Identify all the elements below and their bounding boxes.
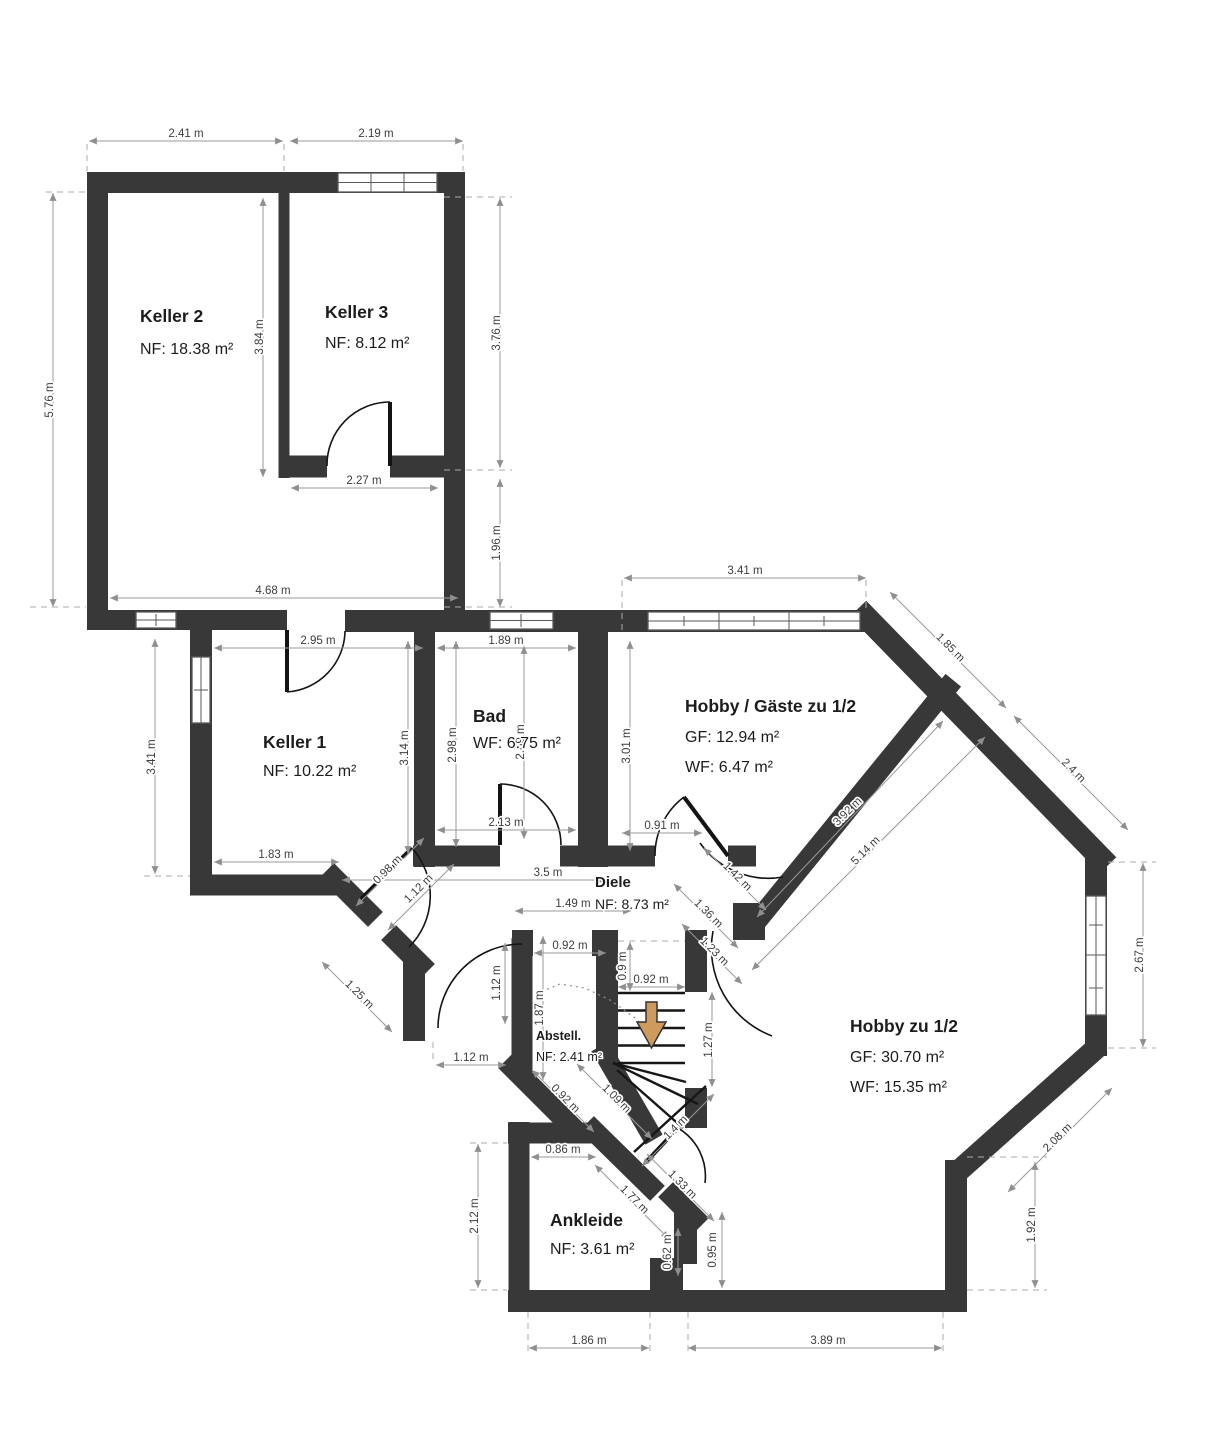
room-label-keller3: Keller 3 [325, 302, 388, 322]
dimension-label: 0.62 m [662, 1234, 674, 1269]
dimension-label: 2.95 m [300, 635, 335, 647]
dimension-label: 1.92 m [1026, 1207, 1038, 1242]
dimension-label: 0.92 m [552, 940, 587, 952]
room-label-keller2: Keller 2 [140, 306, 203, 326]
dimension-label: 4.68 m [255, 585, 290, 597]
dimension-label: 2.41 m [168, 128, 203, 140]
room-area-hobby: WF: 15.35 m² [850, 1079, 948, 1096]
dimension-label: 0.9 m [617, 952, 629, 981]
room-area-hobby-gaeste: WF: 6.47 m² [685, 759, 774, 776]
dimension-label: 0.91 m [644, 820, 679, 832]
dimension-label: 2.12 m [469, 1198, 481, 1233]
room-label-hobby: Hobby zu 1/2 [850, 1016, 958, 1036]
window-keller2-bottom [136, 612, 176, 628]
walk-line [536, 984, 650, 1032]
room-label-hobby-gaeste: Hobby / Gäste zu 1/2 [685, 696, 856, 716]
door-keller3 [327, 402, 390, 466]
room-area-keller2: NF: 18.38 m² [140, 341, 234, 358]
room-label-abstell: Abstell. [536, 1029, 581, 1043]
dimension-label: 1.12 m [491, 965, 503, 1000]
dimension-label: 3.76 m [491, 315, 503, 350]
window-keller3-top [338, 173, 437, 192]
room-area-keller1: NF: 10.22 m² [263, 763, 357, 780]
room-area-ankleide: NF: 3.61 m² [550, 1241, 635, 1258]
dimension-label: 1.87 m [534, 990, 546, 1025]
dimension-label: 2.98 m [447, 727, 459, 762]
dimension-label: 3.5 m [534, 867, 563, 879]
dimension-label: 1.83 m [258, 849, 293, 861]
dimension-label: 3.41 m [727, 565, 762, 577]
dimension-label: 0.92 m [633, 974, 668, 986]
dimension-label: 3.14 m [399, 730, 411, 765]
dimension-label: 1.96 m [491, 525, 503, 560]
dimension-label: 5.14 m [849, 834, 882, 867]
dimension-label: 3.84 m [254, 319, 266, 354]
dimension-label: 1.27 m [703, 1022, 715, 1057]
floor-plan-page: 2.41 m2.19 m5.76 m3.84 m3.76 m2.27 m1.96… [0, 0, 1210, 1440]
dimension-label: 3.41 m [146, 739, 158, 774]
door-bad [500, 784, 561, 845]
dimension-label: 0.86 m [545, 1144, 580, 1156]
dimension-label: 2.13 m [488, 817, 523, 829]
window-bad-top [490, 612, 553, 629]
window-keller1-left [192, 657, 210, 723]
room-area-bad: WF: 6.75 m² [473, 735, 562, 752]
dimension-label: 2.27 m [346, 475, 381, 487]
room-area-hobby: GF: 30.70 m² [850, 1049, 945, 1066]
door-abstell-corridor [438, 944, 522, 1028]
dimension-label: 3.01 m [621, 728, 633, 763]
dimension-label: 1.36 m [691, 897, 724, 930]
room-label-keller1: Keller 1 [263, 732, 326, 752]
dimension-label: 1.86 m [571, 1335, 606, 1347]
dimension-label: 0.98 m [371, 853, 404, 886]
room-label-diele: Diele [595, 874, 631, 891]
dimension-label: 2.19 m [358, 128, 393, 140]
dimension-label: 2.4 m [1059, 756, 1088, 785]
stairs-direction-arrow-icon [637, 1002, 666, 1048]
room-area-diele: NF: 8.73 m² [595, 896, 669, 912]
dimension-label: 2.67 m [1134, 937, 1146, 972]
dimension-label: 2.08 m [1041, 1121, 1074, 1154]
dimension-label: 0.95 m [707, 1232, 719, 1267]
room-area-keller3: NF: 8.12 m² [325, 335, 410, 352]
room-area-abstell: NF: 2.41 m² [536, 1050, 602, 1064]
dimension-label: 1.49 m [555, 898, 590, 910]
dimension-label: 1.25 m [342, 978, 375, 1011]
dimension-label: 3.89 m [810, 1335, 845, 1347]
window-hobby-right [1086, 896, 1106, 1015]
dimension-label: 1.12 m [453, 1052, 488, 1064]
room-label-bad: Bad [473, 706, 506, 726]
floor-plan-drawing: 2.41 m2.19 m5.76 m3.84 m3.76 m2.27 m1.96… [0, 0, 1210, 1440]
dimension-label: 5.76 m [44, 382, 56, 417]
dimension-label: 1.85 m [933, 631, 966, 664]
room-label-ankleide: Ankleide [550, 1210, 623, 1230]
dimension-label: 1.89 m [488, 635, 523, 647]
room-area-hobby-gaeste: GF: 12.94 m² [685, 729, 780, 746]
window-hobby-gaeste-top [648, 612, 860, 630]
doors [287, 402, 783, 1183]
